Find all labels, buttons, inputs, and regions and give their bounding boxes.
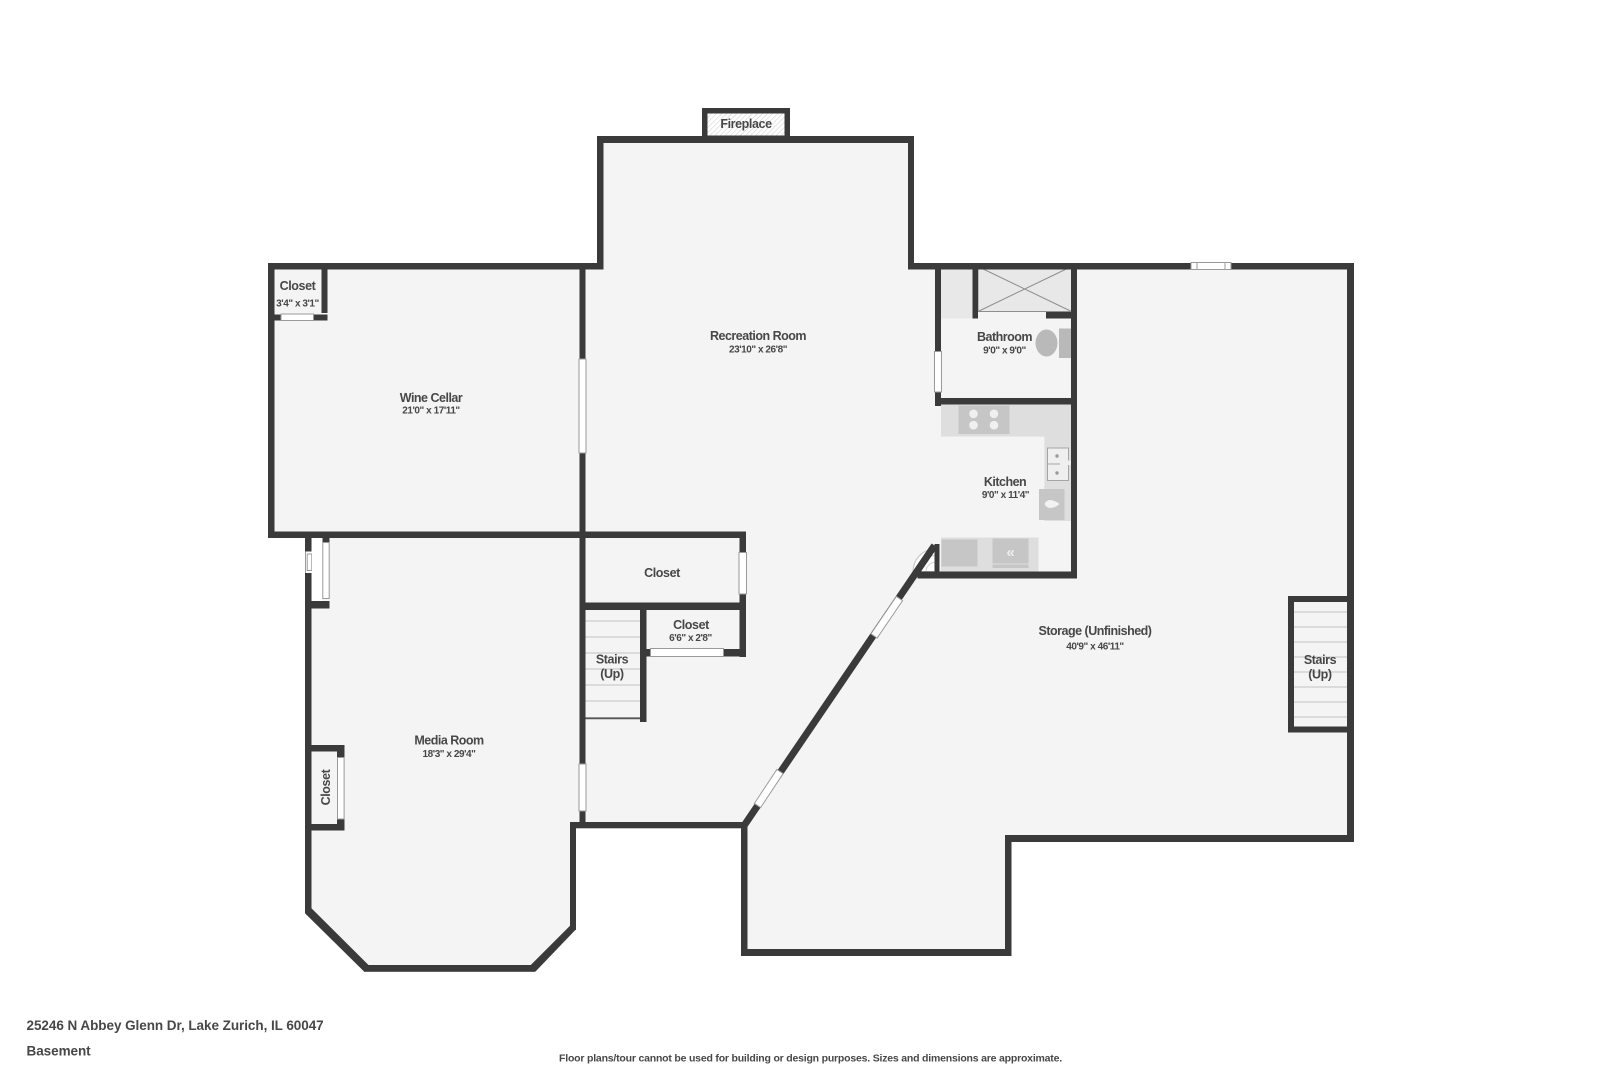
svg-text:Recreation Room: Recreation Room: [710, 329, 806, 343]
svg-text:3'4" x 3'1": 3'4" x 3'1": [276, 299, 319, 310]
svg-text:Fireplace: Fireplace: [720, 117, 772, 131]
svg-text:(Up): (Up): [1308, 668, 1332, 682]
svg-text:Wine Cellar: Wine Cellar: [400, 391, 463, 405]
svg-text:Closet: Closet: [673, 618, 710, 632]
svg-text:Floor plans/tour cannot be use: Floor plans/tour cannot be used for buil…: [559, 1053, 1062, 1065]
svg-text:«: «: [1006, 544, 1014, 561]
svg-text:9'0" x 11'4": 9'0" x 11'4": [982, 490, 1030, 501]
svg-text:9'0" x 9'0": 9'0" x 9'0": [983, 345, 1026, 356]
svg-text:Closet: Closet: [319, 768, 333, 805]
svg-text:Closet: Closet: [280, 279, 317, 293]
svg-text:Basement: Basement: [27, 1044, 92, 1059]
svg-text:40'9" x 46'11": 40'9" x 46'11": [1066, 642, 1124, 653]
svg-text:21'0" x 17'11": 21'0" x 17'11": [402, 406, 460, 417]
svg-text:Kitchen: Kitchen: [984, 475, 1026, 489]
svg-text:23'10" x 26'8": 23'10" x 26'8": [729, 344, 788, 355]
svg-text:Bathroom: Bathroom: [977, 330, 1032, 344]
svg-text:Stairs: Stairs: [596, 653, 629, 667]
svg-text:Media Room: Media Room: [414, 734, 484, 748]
svg-text:Closet: Closet: [644, 566, 681, 580]
svg-text:Stairs: Stairs: [1304, 653, 1337, 667]
svg-text:25246 N Abbey Glenn Dr, Lake Z: 25246 N Abbey Glenn Dr, Lake Zurich, IL …: [27, 1018, 324, 1033]
svg-text:(Up): (Up): [600, 667, 624, 681]
svg-text:6'6" x 2'8": 6'6" x 2'8": [669, 633, 712, 644]
svg-text:18'3" x 29'4": 18'3" x 29'4": [423, 749, 477, 760]
svg-text:Storage (Unfinished): Storage (Unfinished): [1039, 624, 1152, 638]
